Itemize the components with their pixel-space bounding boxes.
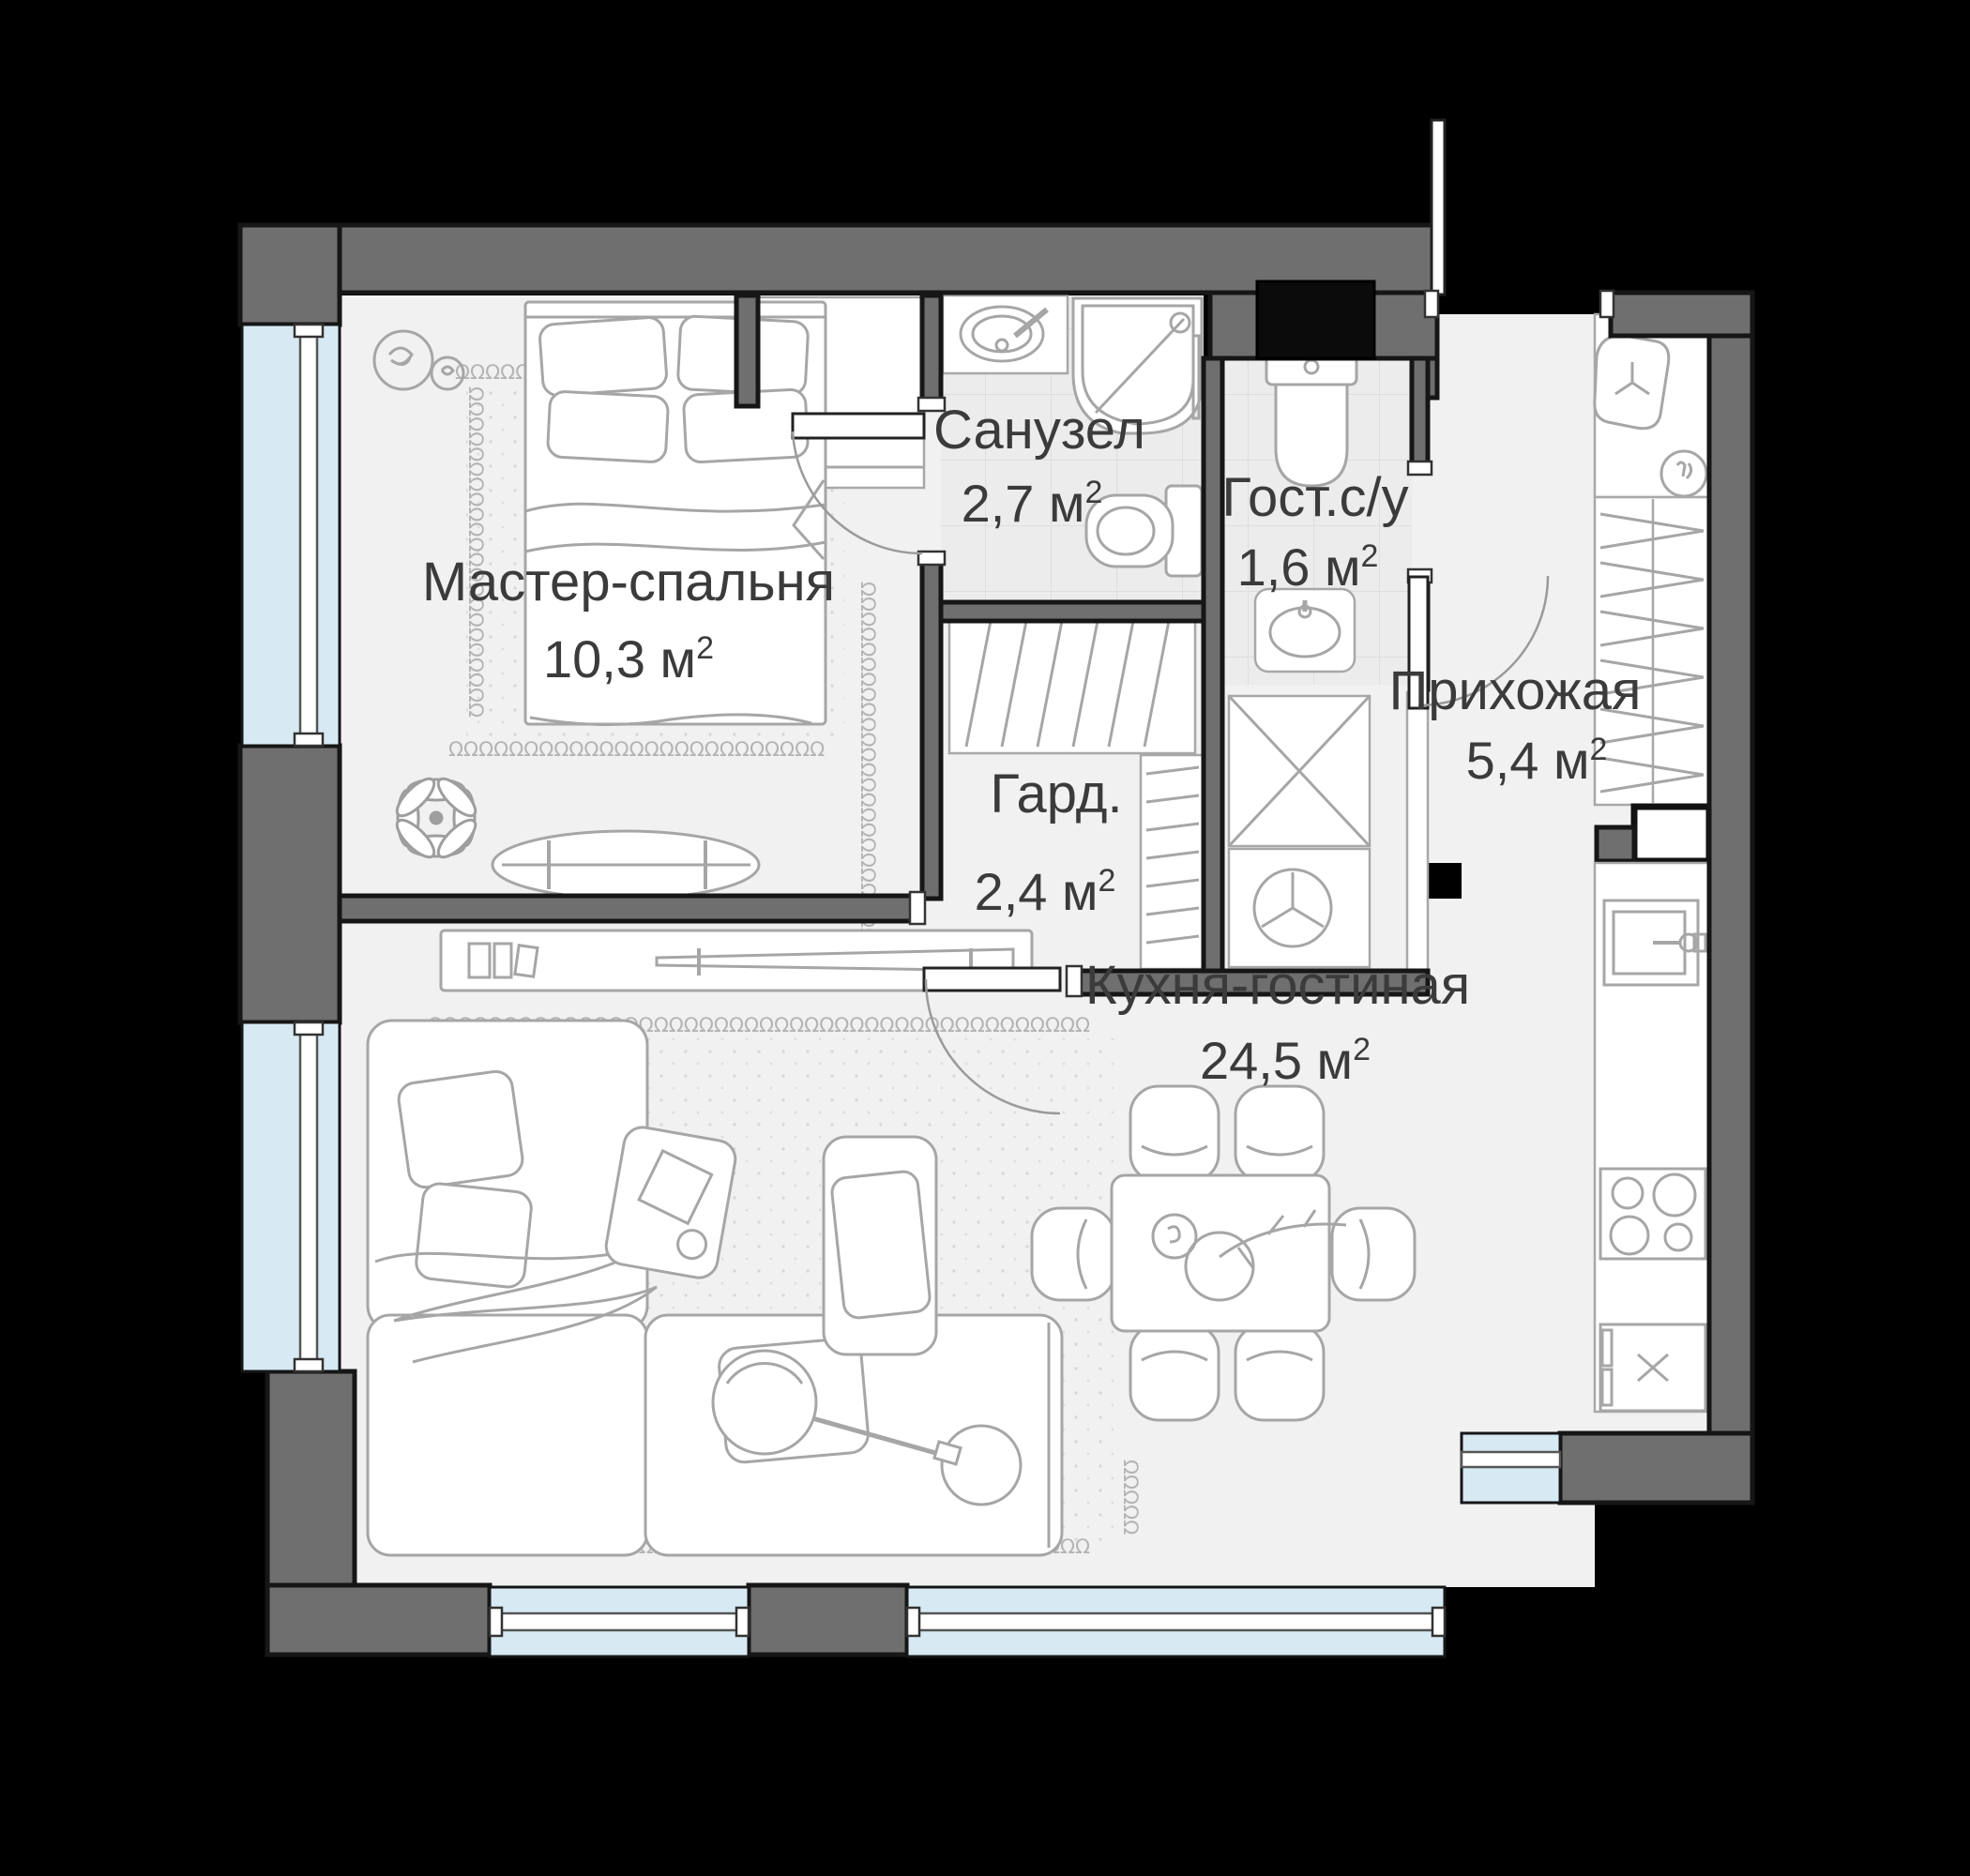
window-kitchen-corner [1462, 1433, 1560, 1503]
area-hallway: 5,4 м2 [1466, 731, 1608, 790]
area-kitchen-living: 24,5 м2 [1200, 1031, 1371, 1090]
pouf [1595, 336, 1669, 429]
wall-top-right-corner [1611, 293, 1752, 336]
label-guest-wc: Гост.с/у [1221, 467, 1408, 528]
bedroom-bench [492, 831, 759, 899]
entrance-door-leaf [1432, 120, 1445, 295]
dining-chair [1235, 1086, 1324, 1182]
wall-bottom-right-block [1560, 1433, 1752, 1503]
wall-bedroom-nook [736, 295, 758, 406]
dining-chair [1032, 1208, 1114, 1300]
wall-top-left-corner [240, 225, 340, 325]
wall-left-pier [240, 746, 340, 1022]
pillow [830, 1171, 931, 1320]
wall-right [1709, 325, 1752, 1433]
door-entrance [1425, 120, 1614, 317]
label-master-bedroom: Мастер-спальня [422, 552, 835, 613]
wall-bottom-pier [749, 1585, 907, 1655]
washing-machine [1229, 849, 1370, 967]
wardrobe-shelving [949, 614, 1195, 753]
hallway-wardrobe [1595, 497, 1709, 805]
area-master-bedroom: 10,3 м2 [543, 629, 714, 688]
dining-chair [1332, 1208, 1415, 1300]
cabinet-x [1229, 696, 1370, 846]
kitchen-counter [1595, 863, 1709, 1412]
armchair [824, 1137, 936, 1354]
window-living-left [242, 1022, 340, 1371]
wall-bathroom-left-a [922, 295, 941, 406]
dining-table [1112, 1175, 1329, 1331]
wall-bottom-left [267, 1585, 490, 1655]
area-guest-wc: 1,6 м2 [1237, 537, 1379, 597]
label-kitchen-living: Кухня-гостиная [1085, 955, 1470, 1016]
bathroom-sink [943, 295, 1068, 373]
area-bathroom: 2,7 м2 [962, 474, 1103, 533]
label-hallway: Прихожая [1389, 660, 1642, 721]
pillow [397, 1069, 524, 1189]
floor-plan: ΩΩΩΩΩΩΩΩΩΩΩΩ ΩΩΩΩΩΩΩΩΩΩΩΩΩΩΩΩΩΩΩΩΩΩ ΩΩΩΩ… [0, 0, 1970, 1876]
hallway-kitchen-strip [1595, 314, 1709, 1412]
window-kitchen-bottom [907, 1587, 1445, 1657]
wardrobe-rail [1141, 755, 1205, 969]
wall-bathroom-bottom [941, 602, 1204, 621]
wall-bottom-left-block [267, 1371, 355, 1589]
pillow [547, 391, 668, 462]
dining-chair [1235, 1324, 1324, 1420]
window-living-bottom [490, 1587, 749, 1657]
wall-tv-divider [340, 896, 919, 921]
pillow [415, 1182, 533, 1289]
small-shaft [1634, 807, 1709, 861]
side-table [603, 1125, 738, 1281]
ventilation-shaft [1257, 281, 1374, 358]
floor-plan-canvas: ΩΩΩΩΩΩΩΩΩΩΩΩ ΩΩΩΩΩΩΩΩΩΩΩΩΩΩΩΩΩΩΩΩΩΩ ΩΩΩΩ… [0, 0, 1970, 1876]
dining-chair [1130, 1324, 1219, 1420]
utility-niche-doors [1407, 692, 1428, 970]
wall-bathroom-left-b [922, 559, 941, 899]
window-bedroom [242, 325, 340, 746]
loop-col-living-right: ΩΩΩΩΩ [1119, 1460, 1142, 1535]
guest-sink [1255, 589, 1355, 672]
guest-toilet [1266, 349, 1356, 486]
label-wardrobe: Гард. [990, 764, 1122, 825]
dining-chair [1130, 1086, 1219, 1182]
pillow [539, 316, 668, 396]
loop-row-bedroom-bottom: ΩΩΩΩΩΩΩΩΩΩΩΩΩΩΩΩΩΩΩΩΩΩΩΩΩ [448, 738, 825, 761]
wall-notch [1597, 827, 1634, 861]
wall-guestwc-right-a [1412, 358, 1428, 469]
area-wardrobe: 2,4 м2 [975, 862, 1116, 921]
label-bathroom: Санузел [933, 400, 1145, 461]
wall-bath-guestwc-divider [1204, 358, 1222, 971]
bathroom-toilet [1086, 486, 1202, 576]
